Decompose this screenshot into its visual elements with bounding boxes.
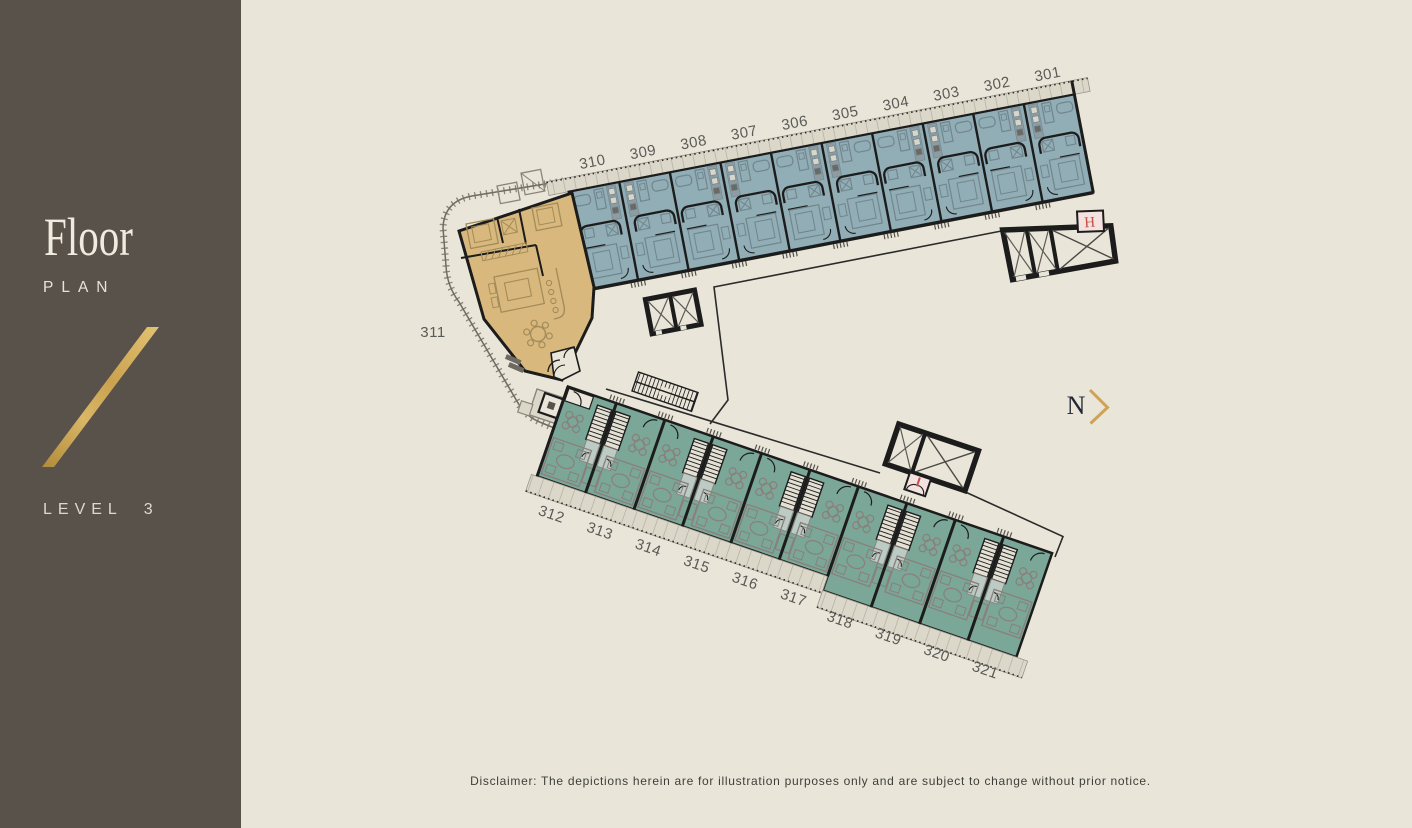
svg-text:311: 311 <box>420 324 445 341</box>
svg-text:N: N <box>1067 391 1086 420</box>
svg-text:308: 308 <box>679 132 708 154</box>
svg-text:317: 317 <box>778 586 809 611</box>
svg-text:H: H <box>1084 215 1096 232</box>
svg-text:303: 303 <box>932 83 961 105</box>
svg-text:306: 306 <box>780 112 809 134</box>
svg-text:310: 310 <box>578 151 607 173</box>
svg-text:313: 313 <box>584 519 615 544</box>
svg-text:304: 304 <box>881 93 910 115</box>
svg-text:312: 312 <box>536 502 567 527</box>
svg-text:302: 302 <box>982 73 1011 95</box>
svg-text:305: 305 <box>831 103 860 125</box>
svg-text:309: 309 <box>628 142 657 164</box>
svg-text:301: 301 <box>1033 64 1062 86</box>
svg-text:314: 314 <box>633 536 664 561</box>
svg-text:307: 307 <box>730 122 759 144</box>
svg-text:316: 316 <box>730 569 761 594</box>
svg-text:315: 315 <box>681 552 712 577</box>
